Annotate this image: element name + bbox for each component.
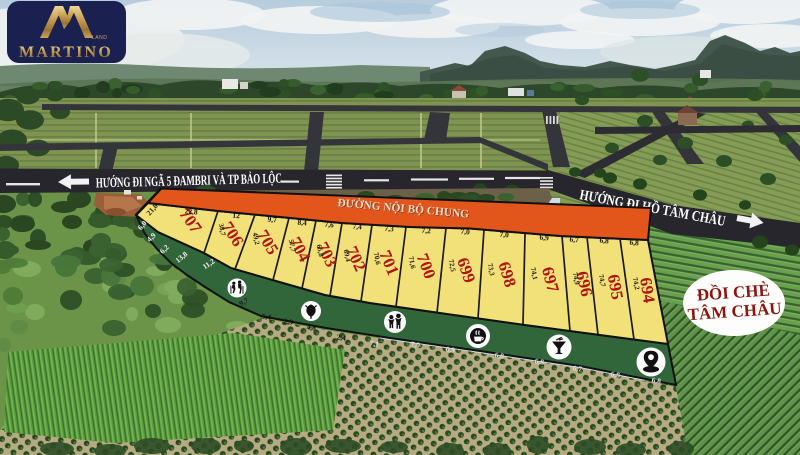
- svg-text:7,4: 7,4: [352, 222, 362, 232]
- svg-text:6,9: 6,9: [445, 344, 456, 354]
- svg-text:6,7: 6,7: [572, 363, 583, 373]
- svg-text:6,8: 6,8: [534, 356, 545, 366]
- svg-text:6,7: 6,7: [569, 235, 579, 245]
- svg-text:22,8: 22,8: [184, 207, 198, 217]
- svg-text:4,8: 4,8: [306, 322, 317, 332]
- svg-text:7,3: 7,3: [384, 224, 394, 234]
- svg-text:MARTINO: MARTINO: [19, 44, 113, 61]
- svg-text:2,4: 2,4: [336, 332, 347, 342]
- svg-text:6,8: 6,8: [651, 375, 662, 385]
- svg-text:LAND: LAND: [92, 35, 107, 41]
- svg-text:6,8: 6,8: [610, 369, 621, 379]
- svg-text:12: 12: [232, 211, 240, 221]
- svg-text:7,2: 7,2: [421, 226, 431, 236]
- svg-text:7,0: 7,0: [460, 227, 470, 237]
- svg-text:6,9: 6,9: [539, 233, 549, 243]
- svg-text:6,8: 6,8: [629, 238, 639, 248]
- svg-text:6,8: 6,8: [599, 236, 609, 246]
- svg-text:7,0: 7,0: [410, 339, 421, 349]
- svg-text:5,4: 5,4: [261, 311, 272, 321]
- svg-text:9,7: 9,7: [267, 215, 277, 225]
- svg-text:7,0: 7,0: [499, 230, 509, 240]
- svg-text:8,4: 8,4: [297, 218, 307, 228]
- svg-text:2,9: 2,9: [283, 316, 294, 326]
- svg-text:6,8: 6,8: [494, 350, 505, 360]
- svg-text:7,1: 7,1: [369, 338, 380, 348]
- svg-text:7,6: 7,6: [324, 220, 334, 230]
